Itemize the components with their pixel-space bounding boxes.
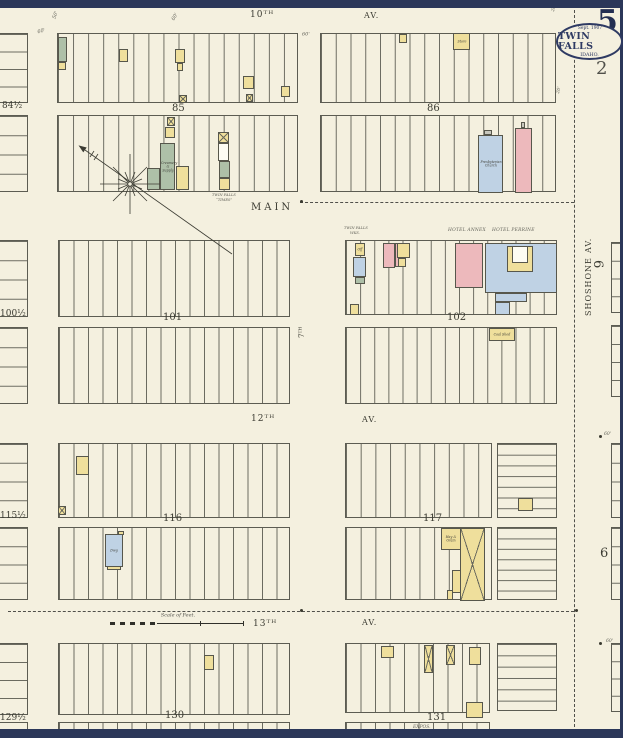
city-block xyxy=(0,240,28,317)
block-number-84: 84½ xyxy=(2,102,22,111)
building xyxy=(452,570,461,593)
block-number-6: 6 xyxy=(591,260,604,268)
building xyxy=(398,258,406,267)
city-block xyxy=(0,527,28,600)
building xyxy=(455,243,483,288)
stamp-city: TWIN FALLS xyxy=(558,32,621,51)
street-label-av: AV. xyxy=(362,619,377,627)
map-annotation-50: 50' xyxy=(52,11,59,20)
block-number-130: 130 xyxy=(165,711,184,721)
building xyxy=(119,49,128,62)
building xyxy=(243,76,254,89)
building xyxy=(179,95,187,103)
compass-rose-icon xyxy=(60,130,250,275)
map-annotation-twin-falls: TWIN FALLS xyxy=(344,226,368,230)
survey-dot xyxy=(300,200,303,203)
building xyxy=(381,646,394,658)
block-number-86: 86 xyxy=(427,104,440,114)
building xyxy=(76,456,89,475)
building-label: Store xyxy=(453,40,469,44)
city-block xyxy=(58,443,290,518)
map-annotation-hotel-annex: HOTEL ANNEX xyxy=(448,228,486,232)
survey-dot xyxy=(599,435,602,438)
map-annotation-times: “TIMES” xyxy=(216,198,232,202)
city-block xyxy=(58,527,290,600)
building xyxy=(175,49,185,63)
building-coal-shed: Coal Shed xyxy=(489,328,515,341)
map-annotation-wks: WKS. xyxy=(350,231,360,235)
stamp-date: Sept. 1907 xyxy=(577,26,601,30)
building-label: Coal Shed xyxy=(490,333,515,337)
building xyxy=(446,645,455,665)
building xyxy=(281,86,290,97)
city-block xyxy=(58,327,290,404)
building-store: Store xyxy=(453,33,470,50)
city-block xyxy=(320,33,556,103)
street-label-13: 13ᵀᴴ xyxy=(253,620,277,629)
building xyxy=(355,277,365,284)
city-block xyxy=(497,527,557,600)
scale-bar-label: Scale of Feet. xyxy=(136,612,220,618)
building xyxy=(447,590,453,600)
map-annotation-20: 20' xyxy=(556,86,562,94)
building xyxy=(107,566,121,570)
section-dashed-line xyxy=(8,611,574,612)
building xyxy=(58,506,66,515)
section-dashed-line xyxy=(574,10,575,732)
map-annotation-twin-falls: TWIN FALLS xyxy=(212,193,236,197)
sanborn-map-sheet: StoreCreamery & SupplyPresbyterian Churc… xyxy=(0,0,623,738)
building-off: Off xyxy=(355,243,365,256)
survey-dot xyxy=(599,642,602,645)
building xyxy=(424,645,433,673)
map-annotation-60: 60' xyxy=(37,28,46,35)
street-label-7: 7ᵀᴴ xyxy=(299,327,306,338)
block-number-102: 102 xyxy=(447,313,466,323)
block-number-131: 131 xyxy=(427,713,446,723)
city-block xyxy=(345,443,492,518)
block-number-85: 85 xyxy=(172,104,185,114)
stamp-state: IDAHO. xyxy=(580,53,599,58)
building xyxy=(383,243,395,268)
map-annotation-60: 60' xyxy=(604,432,611,437)
block-number-117: 117 xyxy=(423,514,442,524)
building-dwg: Dwg xyxy=(105,534,123,567)
building xyxy=(495,302,510,315)
building-label: Off xyxy=(355,248,365,252)
building xyxy=(177,63,183,71)
block-number-6: 6 xyxy=(600,547,608,560)
adjacent-page-number: 2 xyxy=(596,58,607,79)
building xyxy=(246,94,253,102)
block-number-115: 115½ xyxy=(0,512,26,521)
block-number-129: 129½ xyxy=(0,714,26,723)
map-annotation-hotel-perrine: HOTEL PERRINE xyxy=(492,228,535,232)
city-block xyxy=(0,115,28,192)
building xyxy=(350,304,359,315)
building xyxy=(167,117,175,126)
building xyxy=(58,37,67,62)
scale-bar-graphic xyxy=(110,622,246,627)
scan-edge-bottom xyxy=(0,729,623,738)
building-label: Dwg xyxy=(105,549,122,553)
block-number-100: 100½ xyxy=(0,310,26,319)
street-label-av: AV. xyxy=(364,12,379,20)
map-annotation-60: 60' xyxy=(171,12,179,21)
building xyxy=(495,293,527,302)
building xyxy=(466,702,483,718)
building xyxy=(469,647,481,665)
city-block xyxy=(0,327,28,404)
survey-dot xyxy=(300,609,303,612)
building xyxy=(353,257,366,277)
street-label-10: 10ᵀᴴ xyxy=(250,11,274,20)
map-annotation-60: 60' xyxy=(302,32,310,37)
publisher-stamp: Sept. 1907 TWIN FALLS IDAHO. xyxy=(556,23,623,60)
building-label: Presbyterian Church xyxy=(479,160,503,167)
street-label-main: MAIN xyxy=(251,203,293,213)
street-label-av: AV. xyxy=(362,416,377,424)
city-block xyxy=(0,443,28,518)
building xyxy=(512,246,528,263)
building xyxy=(515,128,532,193)
street-label-12: 12ᵀᴴ xyxy=(251,415,275,424)
building xyxy=(58,62,66,70)
block-number-101: 101 xyxy=(163,313,182,323)
scale-bar: Scale of Feet. xyxy=(110,612,246,627)
building-label: Hay & Grain xyxy=(442,535,461,542)
building xyxy=(204,655,214,670)
city-block xyxy=(497,643,557,711)
city-block xyxy=(0,33,28,103)
map-annotation-60: 60' xyxy=(606,639,613,644)
building-hay-grain: Hay & Grain xyxy=(441,528,461,550)
building xyxy=(518,498,533,511)
building xyxy=(399,34,407,43)
building xyxy=(460,528,485,601)
block-number-116: 116 xyxy=(163,514,182,524)
city-block xyxy=(0,643,28,715)
building xyxy=(397,243,410,258)
section-dashed-line xyxy=(300,202,574,203)
street-label-av: AV. xyxy=(585,238,593,253)
survey-dot xyxy=(575,609,578,612)
scan-edge-top xyxy=(0,0,623,8)
city-block xyxy=(58,643,290,715)
building-presbyterian-church: Presbyterian Church xyxy=(478,135,503,193)
city-block xyxy=(345,327,557,404)
